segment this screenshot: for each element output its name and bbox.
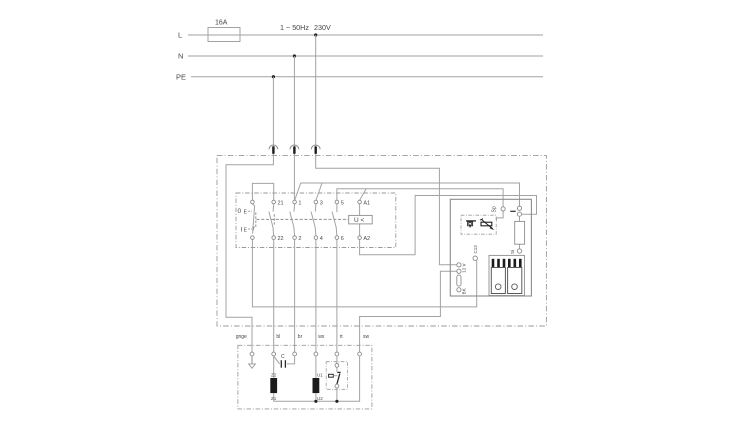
- svg-text:PE: PE: [176, 73, 186, 82]
- svg-text:gnge: gnge: [236, 334, 247, 340]
- svg-text:C: C: [281, 354, 285, 360]
- svg-text:1 ~ 50Hz230V: 1 ~ 50Hz230V: [280, 23, 331, 32]
- svg-text:L: L: [178, 31, 182, 40]
- svg-text:5: 5: [341, 200, 344, 206]
- svg-text:Si: Si: [510, 250, 515, 254]
- svg-text:0: 0: [238, 208, 242, 215]
- svg-text:2: 2: [298, 236, 301, 242]
- svg-text:bl: bl: [276, 334, 280, 340]
- svg-text:A1: A1: [363, 200, 370, 206]
- svg-text:16A: 16A: [215, 20, 228, 27]
- svg-text:N: N: [178, 52, 183, 61]
- svg-text:3: 3: [320, 200, 323, 206]
- svg-text:A2: A2: [363, 236, 370, 242]
- svg-text:ws: ws: [318, 334, 325, 340]
- svg-text:6: 6: [341, 236, 344, 242]
- svg-text:BK: BK: [462, 288, 467, 294]
- svg-text:U1: U1: [317, 373, 323, 378]
- svg-text:12 V: 12 V: [462, 264, 467, 273]
- svg-text:1: 1: [298, 200, 301, 206]
- svg-text:Sp: Sp: [492, 206, 498, 212]
- svg-text:4: 4: [320, 236, 323, 242]
- svg-text:U <: U <: [354, 217, 365, 224]
- svg-text:21: 21: [278, 200, 284, 206]
- svg-text:U2: U2: [317, 396, 323, 401]
- svg-text:sw: sw: [363, 334, 370, 340]
- svg-text:C13: C13: [473, 245, 478, 254]
- svg-text:22: 22: [278, 236, 284, 242]
- svg-text:br: br: [298, 334, 303, 340]
- svg-text:I: I: [241, 227, 243, 234]
- svg-text:Z2: Z2: [271, 373, 277, 378]
